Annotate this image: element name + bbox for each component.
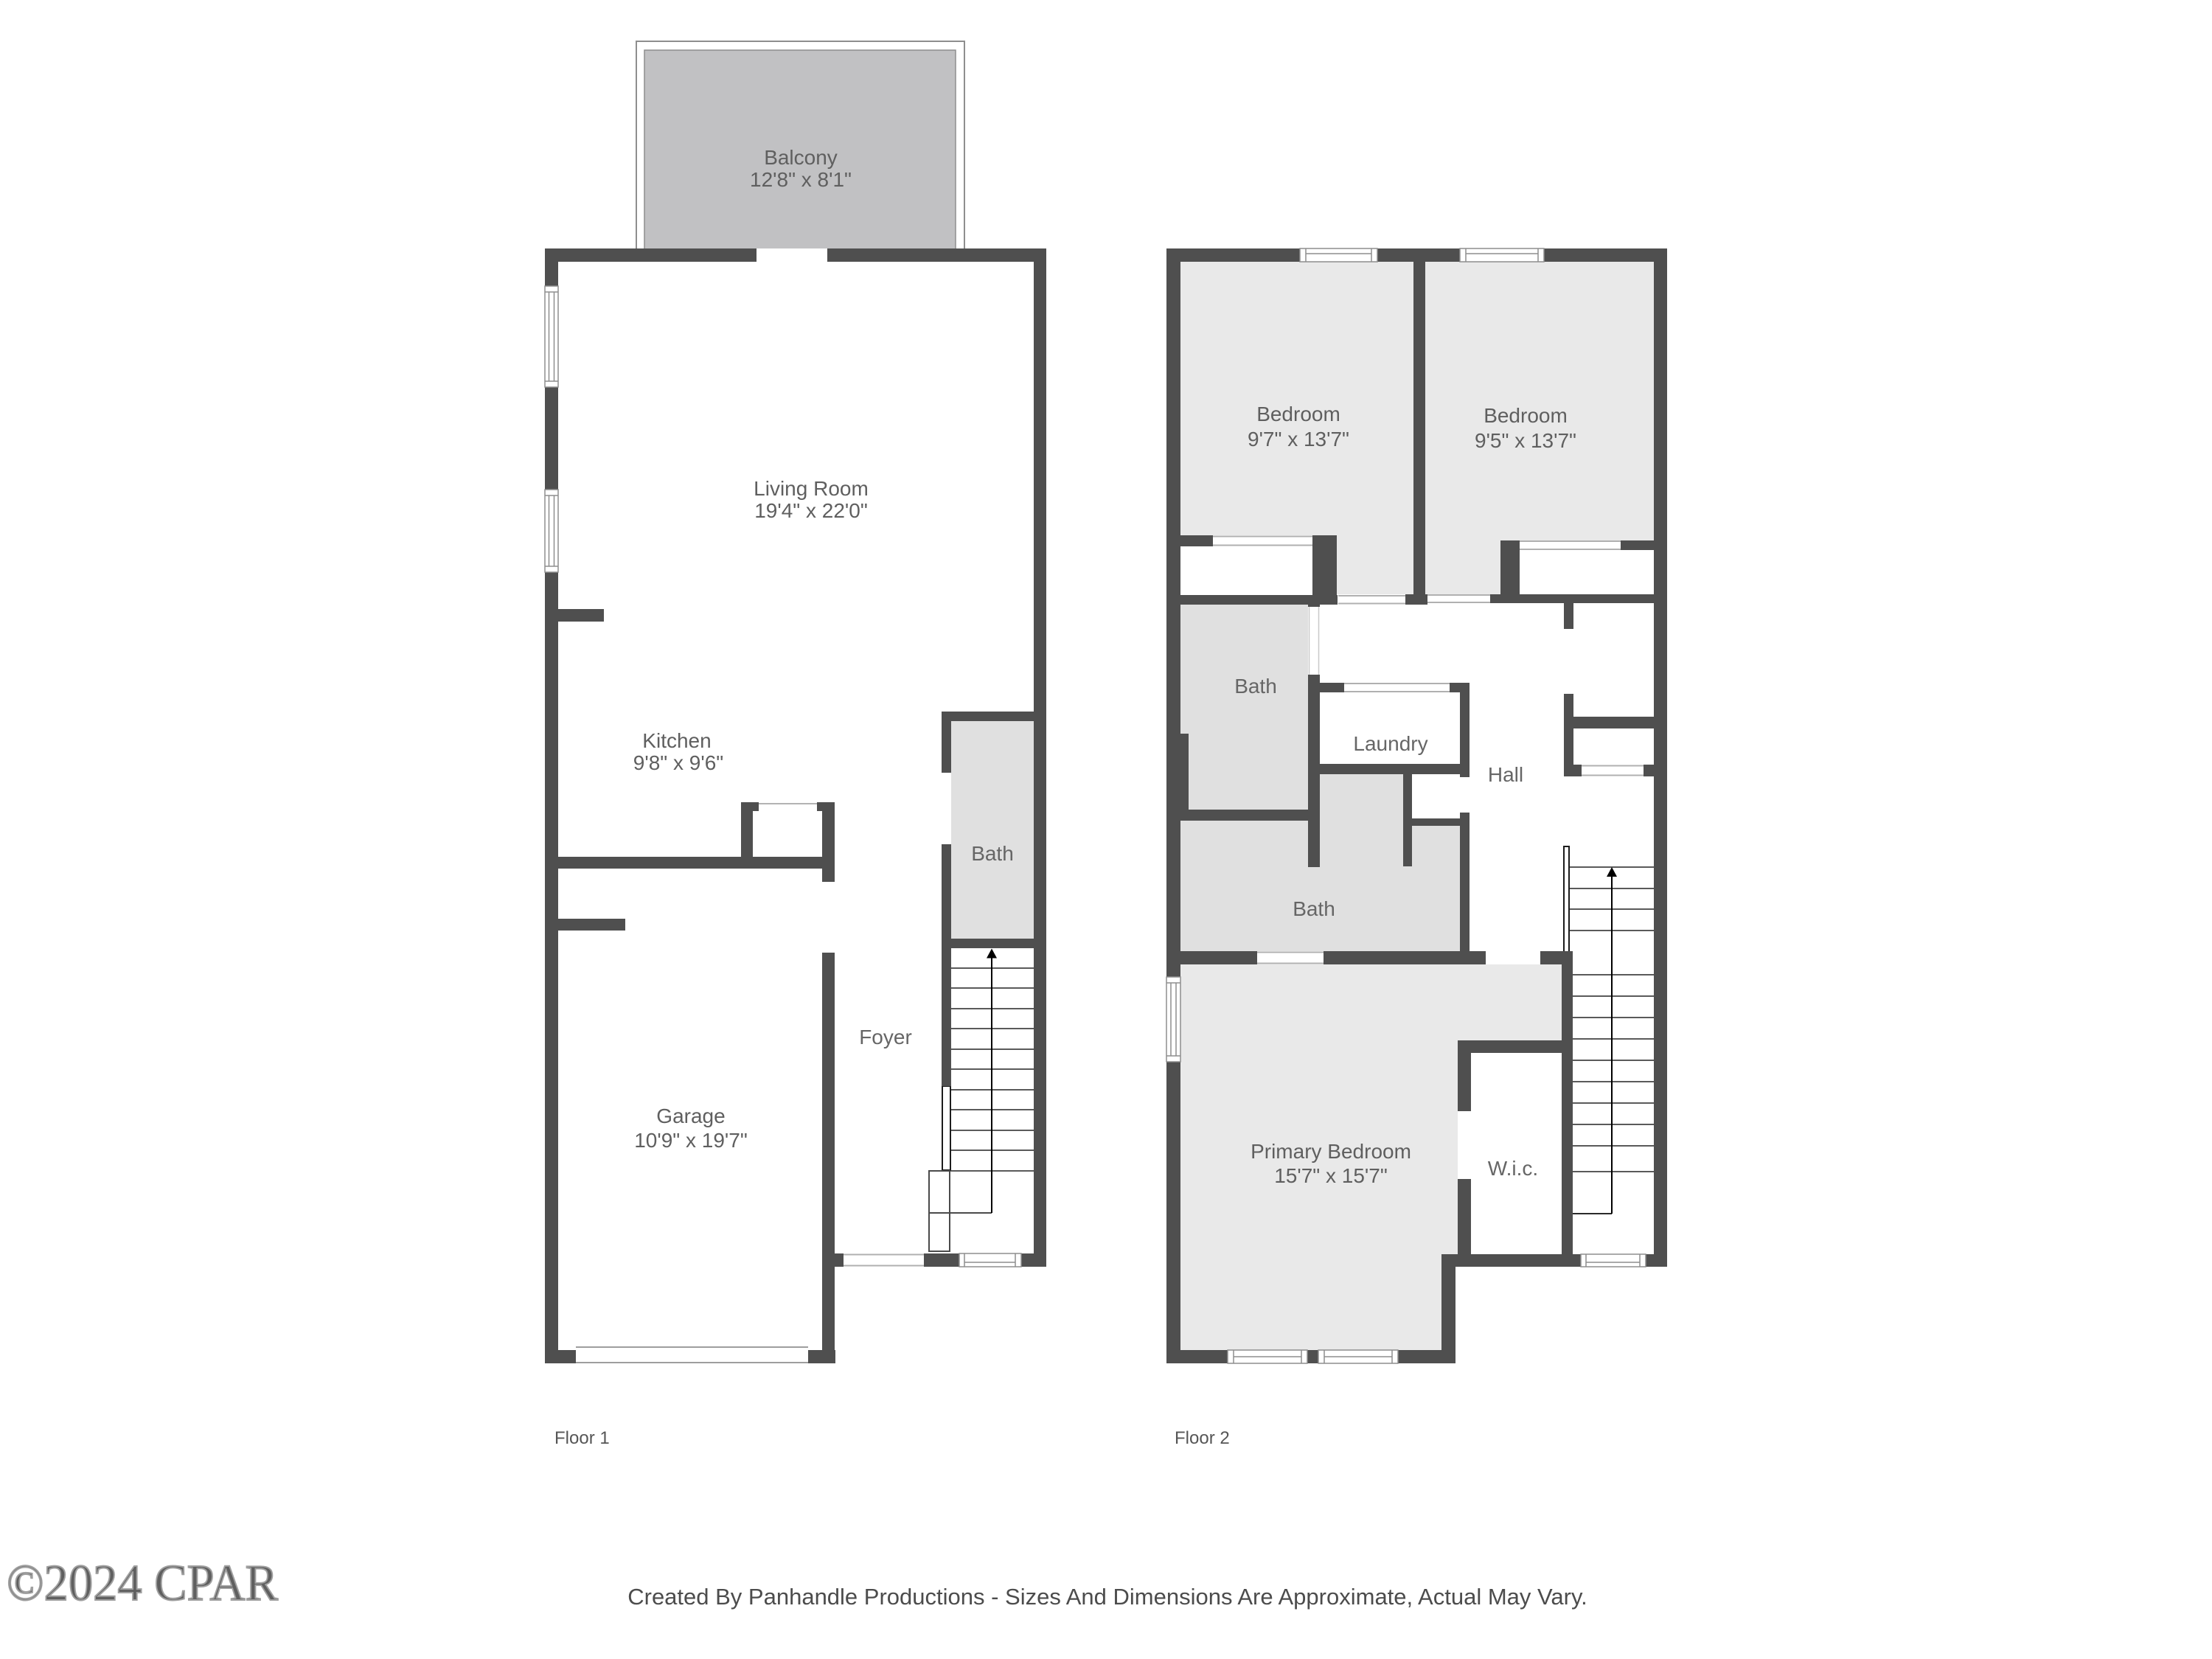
svg-text:Floor 2: Floor 2: [1175, 1428, 1230, 1448]
svg-text:Kitchen: Kitchen: [642, 729, 711, 752]
svg-text:Laundry: Laundry: [1353, 732, 1427, 755]
svg-text:Living Room: Living Room: [754, 477, 869, 500]
svg-text:Bath: Bath: [971, 842, 1014, 865]
svg-text:Garage: Garage: [656, 1105, 725, 1127]
svg-text:9'8" x 9'6": 9'8" x 9'6": [633, 751, 723, 774]
svg-text:10'9" x 19'7": 10'9" x 19'7": [634, 1129, 748, 1152]
svg-text:9'7" x 13'7": 9'7" x 13'7": [1248, 428, 1349, 451]
svg-text:12'8" x 8'1": 12'8" x 8'1": [750, 168, 852, 191]
svg-text:15'7" x 15'7": 15'7" x 15'7": [1274, 1164, 1388, 1187]
svg-text:Primary Bedroom: Primary Bedroom: [1251, 1140, 1411, 1163]
svg-text:Bedroom: Bedroom: [1256, 403, 1340, 425]
svg-text:Hall: Hall: [1488, 763, 1523, 786]
svg-text:19'4" x 22'0": 19'4" x 22'0": [754, 499, 868, 522]
svg-text:Bedroom: Bedroom: [1484, 404, 1568, 427]
svg-text:Floor 1: Floor 1: [554, 1428, 610, 1448]
svg-text:9'5" x 13'7": 9'5" x 13'7": [1475, 429, 1576, 452]
svg-text:Bath: Bath: [1234, 675, 1277, 698]
svg-text:Created By Panhandle Productio: Created By Panhandle Productions - Sizes…: [627, 1584, 1587, 1610]
svg-text:Foyer: Foyer: [859, 1026, 912, 1048]
svg-text:Balcony: Balcony: [764, 146, 838, 169]
svg-text:©2024 CPAR: ©2024 CPAR: [7, 1555, 278, 1612]
svg-text:Bath: Bath: [1293, 897, 1335, 920]
svg-text:W.i.c.: W.i.c.: [1488, 1157, 1538, 1180]
